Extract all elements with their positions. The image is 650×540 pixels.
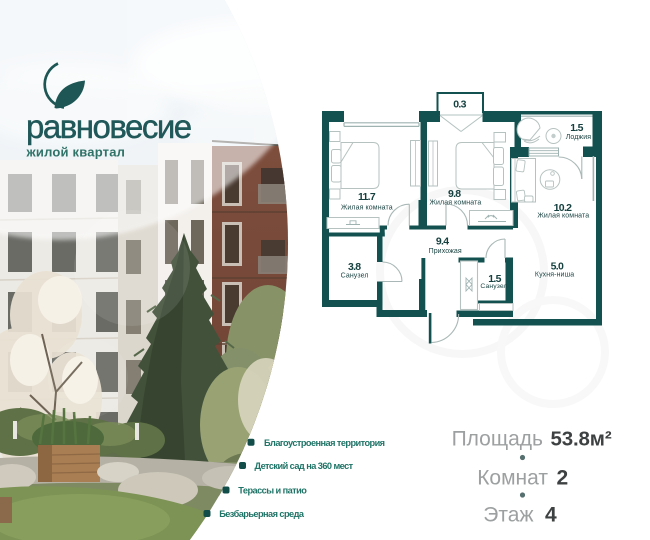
svg-text:2: 2: [557, 467, 569, 490]
svg-text:0.3: 0.3: [453, 99, 466, 111]
svg-text:11.7: 11.7: [358, 191, 376, 203]
svg-text:Кухня-ниша: Кухня-ниша: [535, 272, 574, 279]
svg-text:5.0: 5.0: [551, 260, 564, 272]
svg-text:Санузел: Санузел: [480, 283, 507, 290]
svg-text:53.8м²: 53.8м²: [551, 428, 612, 451]
svg-text:4: 4: [545, 504, 557, 527]
svg-text:1.5: 1.5: [570, 122, 583, 134]
svg-text:равновесие: равновесие: [26, 108, 191, 145]
svg-text:Комнат: Комнат: [477, 467, 548, 490]
svg-text:Безбарьерная среда: Безбарьерная среда: [219, 509, 305, 519]
svg-text:Терассы и патио: Терассы и патио: [238, 486, 307, 496]
svg-text:Санузел: Санузел: [341, 273, 369, 280]
svg-text:Детский сад на 360 мест: Детский сад на 360 мест: [255, 461, 354, 471]
svg-text:Этаж: Этаж: [483, 504, 533, 527]
svg-text:3.8: 3.8: [348, 261, 361, 273]
svg-text:Жилая комната: Жилая комната: [537, 213, 589, 220]
svg-text:Благоустроенная территория: Благоустроенная территория: [264, 438, 385, 448]
svg-text:жилой квартал: жилой квартал: [26, 145, 126, 160]
svg-text:Прихожая: Прихожая: [429, 248, 462, 255]
svg-text:Жилая комната: Жилая комната: [429, 199, 481, 206]
svg-text:Площадь: Площадь: [452, 428, 543, 451]
svg-text:Жилая комната: Жилая комната: [341, 204, 393, 211]
svg-text:9.8: 9.8: [448, 188, 461, 200]
svg-text:9.4: 9.4: [436, 236, 449, 248]
svg-text:Лоджия: Лоджия: [566, 134, 592, 141]
